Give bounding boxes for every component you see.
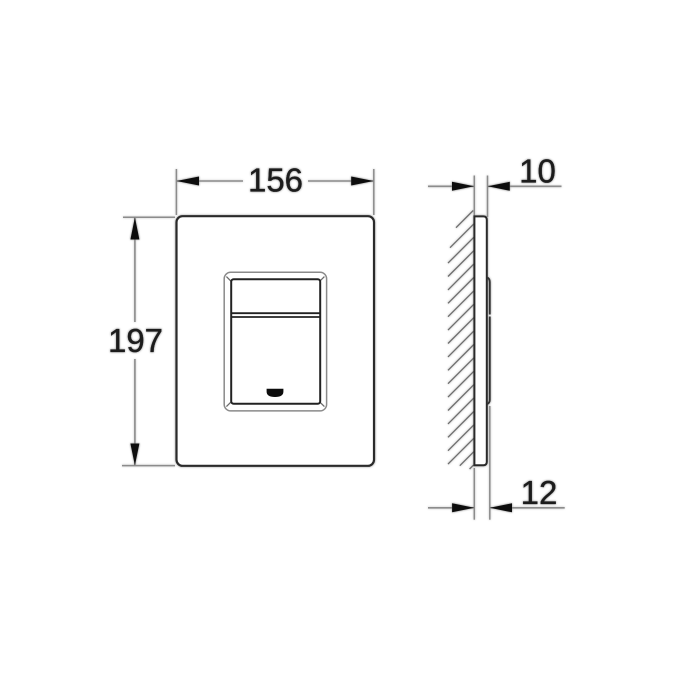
svg-text:197: 197	[108, 322, 163, 359]
svg-text:156: 156	[248, 162, 303, 199]
svg-text:10: 10	[519, 153, 556, 190]
svg-text:12: 12	[521, 474, 558, 511]
